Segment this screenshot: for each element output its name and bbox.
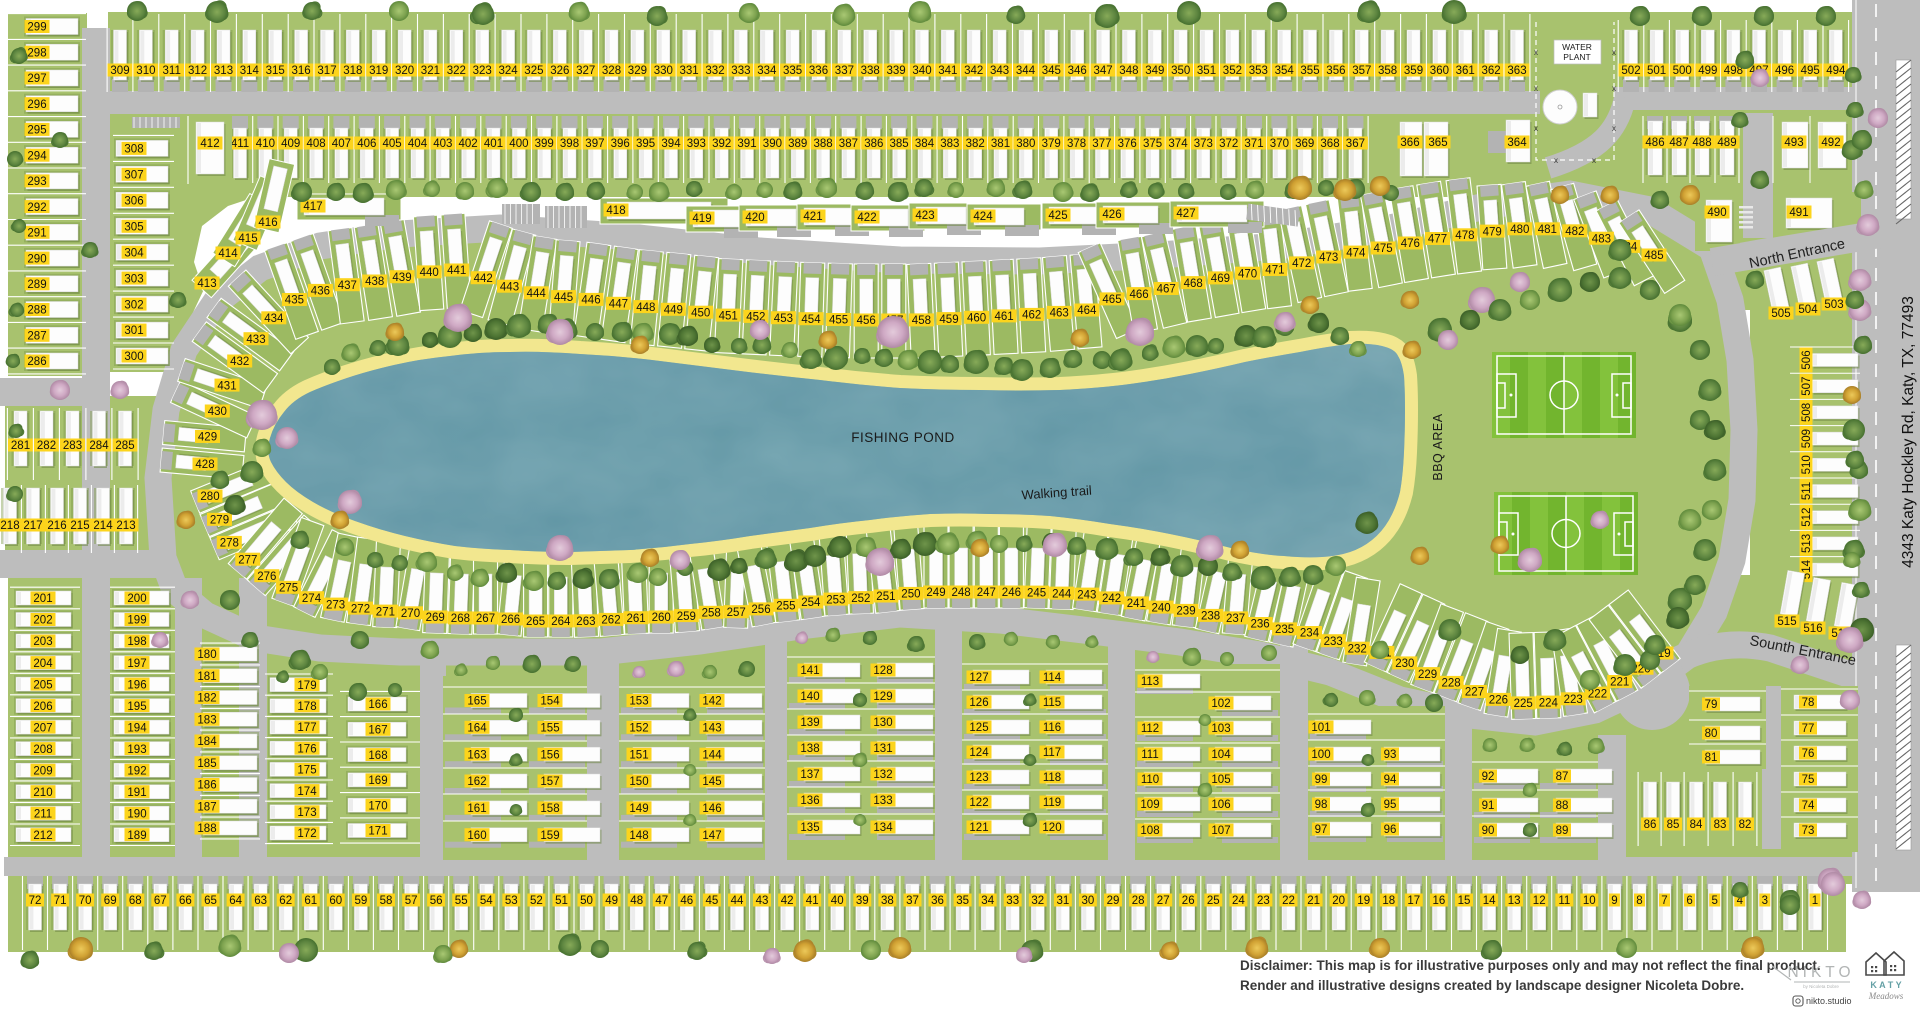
svg-text:89: 89 (1556, 825, 1569, 837)
svg-text:430: 430 (208, 406, 227, 418)
svg-text:42: 42 (781, 895, 794, 907)
svg-text:419: 419 (692, 213, 711, 225)
svg-text:374: 374 (1168, 138, 1188, 150)
svg-text:13: 13 (1508, 895, 1521, 907)
svg-text:364: 364 (1507, 137, 1527, 149)
svg-text:450: 450 (691, 307, 710, 319)
svg-text:422: 422 (857, 212, 876, 224)
svg-text:201: 201 (33, 593, 52, 605)
svg-text:43: 43 (756, 895, 769, 907)
svg-text:270: 270 (401, 608, 420, 620)
svg-text:269: 269 (426, 612, 445, 624)
svg-text:332: 332 (705, 65, 724, 77)
svg-text:83: 83 (1714, 819, 1727, 831)
svg-text:251: 251 (876, 591, 895, 603)
svg-text:413: 413 (197, 278, 216, 290)
svg-text:33: 33 (1006, 895, 1019, 907)
svg-text:516: 516 (1803, 623, 1822, 635)
svg-text:266: 266 (501, 614, 520, 626)
svg-text:109: 109 (1140, 799, 1159, 811)
svg-text:314: 314 (240, 65, 260, 77)
svg-text:145: 145 (702, 776, 721, 788)
svg-text:113: 113 (1141, 676, 1159, 688)
svg-text:WATER: WATER (1562, 42, 1592, 52)
svg-text:12: 12 (1533, 895, 1546, 907)
svg-text:388: 388 (814, 138, 833, 150)
svg-text:319: 319 (369, 65, 388, 77)
svg-text:225: 225 (1514, 698, 1533, 710)
svg-text:211: 211 (34, 808, 52, 820)
svg-text:256: 256 (751, 604, 770, 616)
svg-text:280: 280 (200, 491, 219, 503)
svg-text:446: 446 (581, 295, 600, 307)
svg-text:92: 92 (1482, 771, 1495, 783)
svg-text:135: 135 (800, 822, 819, 834)
svg-text:495: 495 (1801, 65, 1820, 77)
svg-text:49: 49 (605, 895, 618, 907)
svg-text:348: 348 (1119, 65, 1138, 77)
svg-text:61: 61 (304, 895, 317, 907)
svg-text:204: 204 (33, 658, 53, 670)
svg-text:197: 197 (127, 658, 146, 670)
svg-text:298: 298 (27, 47, 46, 59)
svg-text:206: 206 (33, 701, 52, 713)
svg-text:47: 47 (655, 895, 668, 907)
svg-text:501: 501 (1647, 65, 1666, 77)
svg-text:176: 176 (297, 743, 316, 755)
svg-text:184: 184 (197, 736, 217, 748)
svg-text:296: 296 (27, 99, 46, 111)
svg-text:103: 103 (1211, 723, 1230, 735)
svg-text:329: 329 (628, 65, 647, 77)
svg-text:299: 299 (27, 22, 46, 34)
svg-text:x: x (1554, 156, 1558, 165)
svg-text:73: 73 (1802, 825, 1815, 837)
svg-text:68: 68 (129, 895, 142, 907)
svg-text:133: 133 (873, 795, 892, 807)
svg-text:362: 362 (1482, 65, 1501, 77)
svg-text:6: 6 (1686, 895, 1692, 907)
svg-text:241: 241 (1127, 598, 1146, 610)
svg-text:173: 173 (297, 807, 316, 819)
svg-text:439: 439 (392, 272, 411, 284)
svg-text:99: 99 (1315, 774, 1328, 786)
svg-text:444: 444 (527, 288, 547, 300)
svg-text:79: 79 (1705, 699, 1718, 711)
svg-text:470: 470 (1238, 268, 1257, 280)
svg-text:30: 30 (1082, 895, 1095, 907)
svg-text:107: 107 (1211, 825, 1230, 837)
svg-text:382: 382 (966, 138, 985, 150)
svg-text:216: 216 (47, 520, 66, 532)
svg-text:289: 289 (27, 279, 46, 291)
svg-text:384: 384 (915, 138, 935, 150)
svg-text:27: 27 (1157, 895, 1170, 907)
svg-text:200: 200 (127, 593, 146, 605)
svg-text:41: 41 (806, 895, 819, 907)
svg-text:102: 102 (1211, 698, 1230, 710)
svg-text:86: 86 (1644, 819, 1657, 831)
svg-text:20: 20 (1332, 895, 1345, 907)
svg-text:340: 340 (912, 65, 931, 77)
svg-text:104: 104 (1211, 749, 1231, 761)
svg-text:205: 205 (33, 679, 52, 691)
svg-text:427: 427 (1176, 208, 1195, 220)
svg-text:144: 144 (702, 749, 722, 761)
svg-text:168: 168 (368, 750, 387, 762)
svg-text:265: 265 (526, 616, 545, 628)
svg-text:481: 481 (1538, 224, 1557, 236)
svg-text:8: 8 (1636, 895, 1642, 907)
svg-text:333: 333 (731, 65, 750, 77)
svg-text:283: 283 (63, 440, 82, 452)
svg-text:122: 122 (969, 797, 988, 809)
svg-text:147: 147 (702, 830, 721, 842)
svg-text:356: 356 (1326, 65, 1345, 77)
svg-text:455: 455 (829, 315, 848, 327)
svg-text:268: 268 (451, 613, 470, 625)
svg-text:334: 334 (757, 65, 777, 77)
svg-text:199: 199 (127, 615, 146, 627)
svg-text:469: 469 (1211, 273, 1230, 285)
svg-text:370: 370 (1270, 138, 1289, 150)
svg-text:412: 412 (200, 138, 219, 150)
svg-text:17: 17 (1407, 895, 1420, 907)
svg-text:437: 437 (338, 280, 357, 292)
svg-text:480: 480 (1510, 224, 1529, 236)
svg-text:129: 129 (873, 691, 892, 703)
svg-text:471: 471 (1265, 265, 1284, 277)
svg-text:403: 403 (433, 138, 452, 150)
svg-text:324: 324 (499, 65, 519, 77)
svg-text:46: 46 (680, 895, 693, 907)
svg-text:x: x (1612, 84, 1616, 93)
svg-text:116: 116 (1043, 722, 1061, 734)
svg-text:63: 63 (254, 895, 267, 907)
svg-text:258: 258 (702, 608, 721, 620)
svg-text:222: 222 (1588, 688, 1607, 700)
svg-text:460: 460 (967, 313, 986, 325)
svg-text:195: 195 (127, 701, 146, 713)
svg-text:209: 209 (33, 765, 52, 777)
svg-text:245: 245 (1027, 587, 1046, 599)
svg-text:130: 130 (873, 717, 892, 729)
svg-text:442: 442 (474, 273, 493, 285)
svg-text:441: 441 (447, 265, 466, 277)
svg-text:341: 341 (938, 65, 957, 77)
svg-text:56: 56 (430, 895, 443, 907)
svg-text:214: 214 (93, 520, 113, 532)
svg-text:508: 508 (1801, 403, 1813, 422)
svg-text:461: 461 (995, 311, 1014, 323)
svg-text:401: 401 (484, 138, 503, 150)
svg-text:295: 295 (27, 125, 46, 137)
svg-text:483: 483 (1592, 233, 1611, 245)
svg-text:400: 400 (509, 138, 528, 150)
svg-text:434: 434 (264, 313, 284, 325)
svg-text:226: 226 (1489, 695, 1508, 707)
svg-text:239: 239 (1176, 606, 1195, 618)
svg-text:182: 182 (197, 693, 216, 705)
svg-text:325: 325 (524, 65, 543, 77)
svg-text:101: 101 (1311, 722, 1330, 734)
svg-text:230: 230 (1395, 658, 1414, 670)
svg-text:288: 288 (27, 305, 46, 317)
svg-text:468: 468 (1184, 278, 1203, 290)
svg-text:14: 14 (1483, 895, 1496, 907)
svg-text:472: 472 (1292, 258, 1311, 270)
svg-text:490: 490 (1707, 207, 1726, 219)
svg-text:467: 467 (1157, 284, 1176, 296)
svg-text:193: 193 (127, 744, 146, 756)
svg-text:114: 114 (1043, 672, 1062, 684)
svg-text:244: 244 (1052, 588, 1072, 600)
svg-text:35: 35 (956, 895, 969, 907)
svg-text:162: 162 (467, 776, 486, 788)
svg-text:106: 106 (1211, 799, 1230, 811)
svg-text:208: 208 (33, 744, 52, 756)
svg-text:157: 157 (540, 776, 559, 788)
svg-text:259: 259 (677, 611, 696, 623)
svg-text:425: 425 (1048, 210, 1067, 222)
svg-text:108: 108 (1140, 825, 1159, 837)
svg-text:110: 110 (1141, 774, 1159, 786)
svg-text:343: 343 (990, 65, 1009, 77)
svg-text:293: 293 (27, 176, 46, 188)
svg-text:431: 431 (217, 380, 236, 392)
svg-text:155: 155 (540, 723, 559, 735)
svg-text:322: 322 (447, 65, 466, 77)
svg-text:88: 88 (1556, 800, 1569, 812)
svg-text:180: 180 (197, 649, 216, 661)
svg-text:232: 232 (1348, 643, 1367, 655)
svg-text:367: 367 (1346, 138, 1365, 150)
svg-text:158: 158 (540, 803, 559, 815)
svg-text:486: 486 (1645, 137, 1664, 149)
svg-text:175: 175 (297, 765, 316, 777)
svg-text:38: 38 (881, 895, 894, 907)
svg-text:311: 311 (163, 65, 181, 77)
svg-text:64: 64 (229, 895, 242, 907)
svg-text:420: 420 (745, 212, 764, 224)
svg-text:94: 94 (1384, 774, 1397, 786)
svg-text:373: 373 (1194, 138, 1213, 150)
svg-text:196: 196 (127, 679, 146, 691)
svg-text:65: 65 (204, 895, 217, 907)
svg-text:53: 53 (505, 895, 518, 907)
svg-text:218: 218 (0, 520, 19, 532)
svg-text:346: 346 (1068, 65, 1087, 77)
svg-text:37: 37 (906, 895, 919, 907)
svg-text:54: 54 (480, 895, 493, 907)
svg-text:189: 189 (127, 830, 146, 842)
svg-text:132: 132 (873, 769, 892, 781)
svg-text:326: 326 (550, 65, 569, 77)
svg-text:404: 404 (408, 138, 428, 150)
svg-text:273: 273 (326, 599, 345, 611)
svg-text:123: 123 (969, 772, 988, 784)
svg-text:75: 75 (1802, 774, 1815, 786)
svg-text:449: 449 (664, 305, 683, 317)
svg-text:250: 250 (901, 589, 920, 601)
svg-text:39: 39 (856, 895, 869, 907)
svg-text:274: 274 (302, 593, 322, 605)
svg-text:507: 507 (1801, 377, 1813, 396)
svg-text:x: x (1612, 124, 1616, 133)
svg-text:77: 77 (1802, 723, 1815, 735)
svg-text:342: 342 (964, 65, 983, 77)
svg-text:235: 235 (1275, 624, 1294, 636)
svg-text:48: 48 (630, 895, 643, 907)
svg-text:PLANT: PLANT (1563, 52, 1590, 62)
svg-text:354: 354 (1275, 65, 1295, 77)
svg-text:119: 119 (1043, 797, 1061, 809)
svg-text:337: 337 (835, 65, 854, 77)
svg-text:36: 36 (931, 895, 944, 907)
svg-text:x: x (1592, 156, 1596, 165)
svg-text:115: 115 (1043, 697, 1061, 709)
svg-text:191: 191 (127, 787, 146, 799)
svg-text:418: 418 (606, 205, 625, 217)
svg-text:31: 31 (1057, 895, 1070, 907)
svg-text:502: 502 (1621, 65, 1640, 77)
svg-text:260: 260 (652, 612, 671, 624)
svg-text:154: 154 (540, 696, 560, 708)
svg-text:360: 360 (1430, 65, 1449, 77)
svg-text:473: 473 (1319, 252, 1338, 264)
svg-text:353: 353 (1249, 65, 1268, 77)
svg-text:466: 466 (1130, 289, 1149, 301)
svg-text:264: 264 (551, 616, 571, 628)
svg-text:297: 297 (27, 73, 46, 85)
svg-text:435: 435 (285, 295, 304, 307)
svg-text:105: 105 (1211, 774, 1230, 786)
svg-text:248: 248 (952, 587, 971, 599)
svg-text:236: 236 (1251, 619, 1270, 631)
svg-text:496: 496 (1775, 65, 1794, 77)
svg-text:120: 120 (1042, 822, 1061, 834)
svg-text:285: 285 (115, 440, 134, 452)
svg-text:160: 160 (467, 830, 486, 842)
svg-text:66: 66 (179, 895, 192, 907)
svg-text:338: 338 (861, 65, 880, 77)
svg-text:365: 365 (1428, 137, 1447, 149)
svg-text:281: 281 (11, 440, 30, 452)
svg-text:227: 227 (1465, 687, 1484, 699)
svg-text:477: 477 (1428, 234, 1447, 246)
svg-text:243: 243 (1077, 589, 1096, 601)
svg-text:344: 344 (1016, 65, 1036, 77)
svg-text:45: 45 (706, 895, 719, 907)
svg-text:249: 249 (926, 587, 945, 599)
svg-text:478: 478 (1455, 230, 1474, 242)
svg-text:71: 71 (54, 895, 67, 907)
svg-text:136: 136 (800, 795, 819, 807)
svg-text:352: 352 (1223, 65, 1242, 77)
svg-text:213: 213 (116, 520, 135, 532)
svg-text:358: 358 (1378, 65, 1397, 77)
svg-text:509: 509 (1801, 429, 1813, 448)
svg-text:262: 262 (601, 615, 620, 627)
svg-text:9: 9 (1611, 895, 1617, 907)
svg-text:393: 393 (687, 138, 706, 150)
svg-text:305: 305 (124, 221, 143, 233)
svg-text:267: 267 (476, 613, 495, 625)
svg-text:1: 1 (1812, 895, 1818, 907)
svg-text:85: 85 (1667, 819, 1680, 831)
svg-text:476: 476 (1401, 238, 1420, 250)
svg-text:69: 69 (104, 895, 117, 907)
svg-text:247: 247 (977, 587, 996, 599)
svg-text:440: 440 (420, 267, 439, 279)
svg-text:424: 424 (973, 211, 993, 223)
svg-text:286: 286 (27, 356, 46, 368)
svg-text:163: 163 (467, 749, 486, 761)
svg-text:308: 308 (124, 144, 143, 156)
svg-text:x: x (1534, 48, 1538, 57)
svg-text:131: 131 (873, 743, 892, 755)
svg-text:207: 207 (33, 722, 52, 734)
svg-text:x: x (1534, 124, 1538, 133)
svg-text:272: 272 (351, 603, 370, 615)
svg-text:307: 307 (124, 170, 143, 182)
svg-text:187: 187 (197, 802, 216, 814)
svg-text:40: 40 (831, 895, 844, 907)
svg-text:320: 320 (395, 65, 414, 77)
svg-text:279: 279 (210, 515, 229, 527)
svg-text:499: 499 (1698, 65, 1717, 77)
svg-text:402: 402 (459, 138, 478, 150)
svg-text:50: 50 (580, 895, 593, 907)
svg-text:366: 366 (1400, 137, 1419, 149)
svg-text:351: 351 (1197, 65, 1216, 77)
svg-text:234: 234 (1300, 628, 1320, 640)
svg-text:111: 111 (1141, 749, 1158, 761)
svg-text:228: 228 (1442, 678, 1461, 690)
svg-text:489: 489 (1717, 137, 1736, 149)
svg-text:229: 229 (1418, 669, 1437, 681)
svg-text:143: 143 (702, 723, 721, 735)
svg-text:87: 87 (1556, 771, 1569, 783)
svg-text:52: 52 (530, 895, 543, 907)
svg-text:98: 98 (1315, 799, 1328, 811)
svg-text:313: 313 (214, 65, 233, 77)
svg-text:139: 139 (800, 717, 819, 729)
svg-text:378: 378 (1067, 138, 1086, 150)
svg-text:488: 488 (1692, 137, 1711, 149)
svg-text:5: 5 (1711, 895, 1717, 907)
svg-text:174: 174 (297, 786, 317, 798)
svg-text:179: 179 (297, 680, 316, 692)
svg-text:178: 178 (297, 701, 316, 713)
svg-text:318: 318 (343, 65, 362, 77)
svg-text:151: 151 (629, 749, 648, 761)
svg-text:331: 331 (680, 65, 699, 77)
svg-text:242: 242 (1102, 593, 1121, 605)
svg-text:212: 212 (33, 830, 52, 842)
svg-text:70: 70 (79, 895, 92, 907)
svg-text:407: 407 (332, 138, 351, 150)
svg-text:396: 396 (611, 138, 630, 150)
svg-text:142: 142 (702, 696, 721, 708)
svg-text:492: 492 (1821, 137, 1840, 149)
svg-text:22: 22 (1282, 895, 1295, 907)
svg-text:392: 392 (712, 138, 731, 150)
svg-text:62: 62 (279, 895, 292, 907)
svg-text:16: 16 (1433, 895, 1446, 907)
svg-text:336: 336 (809, 65, 828, 77)
svg-text:345: 345 (1042, 65, 1061, 77)
